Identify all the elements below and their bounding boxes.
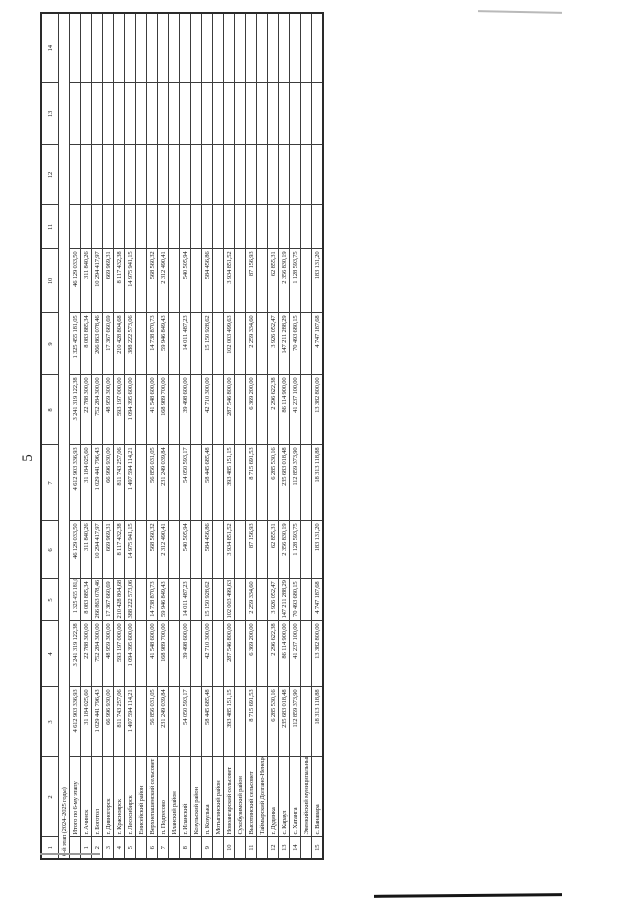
empty-cell-col14 [114,13,125,83]
value-cell-col6 [301,521,312,579]
value-cell-col7: 8 715 691,53 [246,445,257,521]
territory-name-cell: г. Лесосибирск [125,757,136,837]
empty-cell-col13 [202,83,213,145]
value-cell-col10: 183 131,20 [312,249,324,313]
value-cell-col6 [235,521,246,579]
page-number: 5 [14,448,42,468]
territory-name-cell: Иланский район [169,757,180,837]
empty-cell-col14 [158,13,169,83]
table-row-data: 1г. Ачинск31 184 025,6022 788 300,008 08… [81,13,92,859]
empty-cell-col12 [301,145,312,205]
table-row-data: 3г. Дивногорск66 996 930,0048 959 300,00… [103,13,114,859]
value-cell-col9: 4 747 187,68 [312,313,324,375]
value-cell-col7 [257,445,268,521]
value-cell-col9 [301,313,312,375]
value-cell-col7: 231 249 039,84 [158,445,169,521]
value-cell-col5: 17 367 660,69 [103,579,114,621]
value-cell-col7: 58 445 685,48 [202,445,213,521]
value-cell-col8 [191,375,202,445]
empty-cell-col13 [279,83,290,145]
empty-cell-col14 [246,13,257,83]
empty-cell-col11 [180,205,191,249]
value-cell-col3: 811 743 257,06 [114,687,125,757]
value-cell-col3: 66 996 930,00 [103,687,114,757]
row-number-cell [301,837,312,859]
value-cell-col3 [235,687,246,757]
value-cell-col8: 287 546 800,00 [224,375,235,445]
table-row-group: Эвенкийский муниципальный район [301,13,312,859]
empty-cell-col12 [114,145,125,205]
empty-cell-col11 [114,205,125,249]
row-number-cell: 11 [246,837,257,859]
table-row-data: 9п. Козулька58 445 685,4842 710 300,0015… [202,13,213,859]
scan-artifact-bottom-line [374,893,562,898]
value-cell-col4: 168 989 700,00 [158,621,169,687]
empty-cell-col13 [224,83,235,145]
empty-cell-col12 [235,145,246,205]
empty-cell-col14 [301,13,312,83]
value-cell-col5 [191,579,202,621]
value-cell-col7: 235 683 018,48 [279,445,290,521]
value-cell-col4 [191,621,202,687]
value-cell-col7 [213,445,224,521]
row-number-cell [235,837,246,859]
value-cell-col8: 752 284 300,00 [92,375,103,445]
scan-artifact-speck [40,853,100,855]
scanned-document-page: 5 12345678910111213146-й этап (2024–2025… [0,0,640,905]
value-cell-col7: 56 856 031,05 [147,445,158,521]
empty-cell-col14 [279,13,290,83]
table-row-group: Козульский район [191,13,202,859]
value-cell-col6: 46 129 033,50 [70,521,81,579]
value-cell-col7 [169,445,180,521]
value-cell-col3 [257,687,268,757]
value-cell-col9: 17 367 660,69 [103,313,114,375]
empty-cell-col11 [136,205,147,249]
empty-cell-col12 [92,145,103,205]
value-cell-col10: 8 117 432,38 [114,249,125,313]
value-cell-col8 [235,375,246,445]
stage-header-cell: 6-й этап (2024–2025 годы) [59,13,70,859]
empty-cell-col14 [312,13,324,83]
value-cell-col10: 2 356 830,19 [279,249,290,313]
empty-cell-col11 [235,205,246,249]
empty-cell-col14 [180,13,191,83]
value-cell-col6: 669 969,31 [103,521,114,579]
row-number-cell [257,837,268,859]
value-cell-col6 [213,521,224,579]
column-number-cell: 14 [41,13,59,83]
value-cell-col6 [191,521,202,579]
value-cell-col10 [301,249,312,313]
value-cell-col4: 13 382 800,00 [312,621,324,687]
value-cell-col9: 1 325 455 181,05 [70,313,81,375]
empty-cell-col14 [125,13,136,83]
value-cell-col9: 388 222 573,06 [125,313,136,375]
value-cell-col8: 39 498 600,00 [180,375,191,445]
value-cell-col9: 8 083 885,34 [81,313,92,375]
value-cell-col6: 2 356 830,19 [279,521,290,579]
value-cell-col5: 266 863 078,46 [92,579,103,621]
empty-cell-col13 [191,83,202,145]
empty-cell-col12 [136,145,147,205]
empty-cell-col12 [81,145,92,205]
value-cell-col5: 210 428 804,68 [114,579,125,621]
value-cell-col6: 568 560,32 [147,521,158,579]
value-cell-col4 [257,621,268,687]
empty-cell-col12 [279,145,290,205]
value-cell-col4: 752 284 300,00 [92,621,103,687]
value-cell-col5: 8 083 885,34 [81,579,92,621]
empty-cell-col14 [136,13,147,83]
column-number-cell: 7 [41,445,59,521]
value-cell-col10: 14 975 941,15 [125,249,136,313]
value-cell-col4 [235,621,246,687]
column-number-cell: 3 [41,687,59,757]
table-row-group: Енисейский район [136,13,147,859]
value-cell-col7 [191,445,202,521]
empty-cell-col12 [290,145,301,205]
empty-cell-col11 [279,205,290,249]
value-cell-col10: 568 560,32 [147,249,158,313]
value-cell-col8 [136,375,147,445]
value-cell-col4 [213,621,224,687]
value-cell-col5: 15 150 928,62 [202,579,213,621]
value-cell-col10: 62 855,31 [268,249,279,313]
empty-cell-col13 [92,83,103,145]
value-cell-col3 [213,687,224,757]
empty-cell-col13 [180,83,191,145]
territory-name-cell: с. Караул [279,757,290,837]
value-cell-col8: 3 241 319 122,38 [70,375,81,445]
territory-name-cell: Новоангарский сельсовет [224,757,235,837]
value-cell-col7: 811 743 257,06 [114,445,125,521]
empty-cell-col13 [301,83,312,145]
value-cell-col6: 2 312 490,41 [158,521,169,579]
table-row-data: 13с. Караул235 683 018,4886 114 900,0014… [279,13,290,859]
row-number-cell: 5 [125,837,136,859]
value-cell-col10: 311 840,26 [81,249,92,313]
territory-name-cell: Эвенкийский муниципальный район [301,757,312,837]
row-number-cell: 7 [158,837,169,859]
value-cell-col9: 266 863 078,46 [92,313,103,375]
value-cell-col10 [213,249,224,313]
value-cell-col10: 10 294 417,97 [92,249,103,313]
value-cell-col6: 584 456,86 [202,521,213,579]
value-cell-col7: 6 285 530,16 [268,445,279,521]
empty-cell-col11 [290,205,301,249]
value-cell-col5: 14 011 487,23 [180,579,191,621]
value-cell-col10: 2 312 490,41 [158,249,169,313]
column-number-cell: 9 [41,313,59,375]
row-number-cell: 10 [224,837,235,859]
table-row-data: 11Высотинский сельсовет8 715 691,536 369… [246,13,257,859]
value-cell-col8: 86 114 900,00 [279,375,290,445]
value-cell-col7 [235,445,246,521]
empty-cell-col13 [81,83,92,145]
value-cell-col8: 42 710 300,00 [202,375,213,445]
territory-name-cell: Итого по 6-му этапу [70,757,81,837]
empty-cell-col11 [70,205,81,249]
empty-cell-col12 [125,145,136,205]
value-cell-col6 [136,521,147,579]
value-cell-col3: 231 249 039,84 [158,687,169,757]
row-number-cell: 2 [92,837,103,859]
row-number-cell: 12 [268,837,279,859]
territory-name-cell: г. Дивногорск [103,757,114,837]
value-cell-col4: 6 369 200,00 [246,621,257,687]
value-cell-col9: 15 150 928,62 [202,313,213,375]
value-cell-col5: 1 325 455 181,05 [70,579,81,621]
empty-cell-col14 [290,13,301,83]
value-cell-col8: 13 382 800,00 [312,375,324,445]
empty-cell-col12 [312,145,324,205]
value-cell-col5: 2 259 334,60 [246,579,257,621]
row-number-cell: 9 [202,837,213,859]
empty-cell-col14 [147,13,158,83]
empty-cell-col12 [158,145,169,205]
value-cell-col6 [257,521,268,579]
value-cell-col3: 4 612 903 336,93 [70,687,81,757]
table-row-group: Таймырский Долгано-Ненецкий муниципальны… [257,13,268,859]
value-cell-col3: 54 050 593,17 [180,687,191,757]
row-number-cell [213,837,224,859]
column-number-cell: 1 [41,837,59,859]
empty-cell-col14 [235,13,246,83]
value-cell-col4: 22 788 300,00 [81,621,92,687]
table-row-data: 14с. Хатанга112 859 373,9041 237 100,007… [290,13,301,859]
territory-name-cell: Таймырский Долгано-Ненецкий муниципальны… [257,757,268,837]
territory-name-cell: Козульский район [191,757,202,837]
value-cell-col10: 1 128 593,75 [290,249,301,313]
value-cell-col9 [191,313,202,375]
value-cell-col9: 14 011 487,23 [180,313,191,375]
value-cell-col7: 54 050 593,17 [180,445,191,521]
row-number-cell: 4 [114,837,125,859]
table-row-total: Итого по 6-му этапу4 612 903 336,933 241… [70,13,81,859]
value-cell-col10: 669 969,31 [103,249,114,313]
row-number-cell: 15 [312,837,324,859]
value-cell-col8: 6 369 200,00 [246,375,257,445]
empty-cell-col12 [147,145,158,205]
table-row-group: Иланский район [169,13,180,859]
value-cell-col4 [301,621,312,687]
value-cell-col3 [301,687,312,757]
value-cell-col9: 3 926 052,47 [268,313,279,375]
value-cell-col5: 70 493 680,15 [290,579,301,621]
territory-name-cell: Верхнепашенский сельсовет [147,757,158,837]
value-cell-col7: 66 996 930,00 [103,445,114,521]
value-cell-col5 [169,579,180,621]
value-cell-col7: 4 612 903 336,93 [70,445,81,521]
value-cell-col9: 2 259 334,60 [246,313,257,375]
value-cell-col8: 593 197 000,00 [114,375,125,445]
value-cell-col6: 62 855,31 [268,521,279,579]
value-cell-col8: 41 237 100,00 [290,375,301,445]
empty-cell-col12 [70,145,81,205]
value-cell-col4: 3 241 319 122,38 [70,621,81,687]
column-number-cell: 10 [41,249,59,313]
empty-cell-col13 [158,83,169,145]
value-cell-col10: 584 456,86 [202,249,213,313]
value-cell-col5 [235,579,246,621]
table-row-data: 4г. Красноярск811 743 257,06593 197 000,… [114,13,125,859]
value-cell-col9 [169,313,180,375]
value-cell-col8: 41 548 600,00 [147,375,158,445]
value-cell-col10: 3 934 851,52 [224,249,235,313]
page-number-container: 5 [18,444,38,472]
empty-cell-col11 [169,205,180,249]
value-cell-col5: 147 211 288,29 [279,579,290,621]
table-row-group: Сухобузимский район [235,13,246,859]
table-row-data: 2г. Боготол1 029 441 796,43752 284 300,0… [92,13,103,859]
column-number-cell: 5 [41,579,59,621]
value-cell-col8: 2 296 622,38 [268,375,279,445]
territory-name-cell: Высотинский сельсовет [246,757,257,837]
value-cell-col9: 59 946 849,43 [158,313,169,375]
territory-name-cell: г. Иланский [180,757,191,837]
column-number-cell: 4 [41,621,59,687]
value-cell-col5 [257,579,268,621]
value-cell-col7: 18 313 118,88 [312,445,324,521]
value-cell-col7: 393 485 151,15 [224,445,235,521]
table-row-data: 6Верхнепашенский сельсовет56 856 031,054… [147,13,158,859]
value-cell-col4: 86 114 900,00 [279,621,290,687]
territory-name-cell: г. Ачинск [81,757,92,837]
rotated-table-container: 12345678910111213146-й этап (2024–2025 г… [40,14,392,860]
value-cell-col5 [136,579,147,621]
value-cell-col5 [301,579,312,621]
empty-cell-col11 [268,205,279,249]
column-number-cell: 6 [41,521,59,579]
value-cell-col6: 3 934 851,52 [224,521,235,579]
row-number-cell: 3 [103,837,114,859]
value-cell-col6: 1 128 593,75 [290,521,301,579]
table-row-data: 7п. Подтесово231 249 039,84168 989 700,0… [158,13,169,859]
value-cell-col8: 48 959 300,00 [103,375,114,445]
empty-cell-col14 [268,13,279,83]
row-number-cell [191,837,202,859]
value-cell-col10: 540 505,94 [180,249,191,313]
value-cell-col8 [169,375,180,445]
value-cell-col3: 1 497 594 114,21 [125,687,136,757]
value-cell-col5: 102 003 499,63 [224,579,235,621]
value-cell-col9 [213,313,224,375]
value-cell-col9: 14 738 870,73 [147,313,158,375]
value-cell-col5: 59 946 849,43 [158,579,169,621]
empty-cell-col14 [191,13,202,83]
empty-cell-col11 [301,205,312,249]
value-cell-col4: 42 710 300,00 [202,621,213,687]
empty-cell-col13 [312,83,324,145]
value-cell-col7: 31 184 025,60 [81,445,92,521]
value-cell-col3 [136,687,147,757]
table-row-data: 10Новоангарский сельсовет393 485 151,152… [224,13,235,859]
value-cell-col3 [191,687,202,757]
column-number-cell: 12 [41,145,59,205]
empty-cell-col11 [202,205,213,249]
value-cell-col5: 14 738 870,73 [147,579,158,621]
value-cell-col8 [257,375,268,445]
empty-cell-col11 [191,205,202,249]
empty-cell-col13 [235,83,246,145]
table-row-data: 8г. Иланский54 050 593,1739 498 600,0014… [180,13,191,859]
value-cell-col4: 48 959 300,00 [103,621,114,687]
value-cell-col8: 1 094 395 600,00 [125,375,136,445]
value-cell-col10 [191,249,202,313]
value-cell-col9: 147 211 288,29 [279,313,290,375]
value-cell-col10 [136,249,147,313]
empty-cell-col12 [191,145,202,205]
column-number-cell: 2 [41,757,59,837]
value-cell-col5: 388 222 573,06 [125,579,136,621]
empty-cell-col14 [213,13,224,83]
row-number-cell: 6 [147,837,158,859]
value-cell-col7: 1 497 594 114,21 [125,445,136,521]
table-row-stage: 6-й этап (2024–2025 годы) [59,13,70,859]
budget-table: 12345678910111213146-й этап (2024–2025 г… [40,12,324,860]
value-cell-col3: 6 285 530,16 [268,687,279,757]
empty-cell-col13 [213,83,224,145]
value-cell-col4: 1 094 395 600,00 [125,621,136,687]
empty-cell-col11 [224,205,235,249]
empty-cell-col12 [103,145,114,205]
territory-name-cell: г. Дудинка [268,757,279,837]
value-cell-col3: 31 184 025,60 [81,687,92,757]
value-cell-col4: 41 548 600,00 [147,621,158,687]
empty-cell-col12 [224,145,235,205]
empty-cell-col14 [224,13,235,83]
empty-cell-col13 [257,83,268,145]
value-cell-col9: 210 428 804,68 [114,313,125,375]
table-row-data: 12г. Дудинка6 285 530,162 296 622,383 92… [268,13,279,859]
empty-cell-col13 [290,83,301,145]
value-cell-col9: 70 493 680,15 [290,313,301,375]
territory-name-cell: г. Боготол [92,757,103,837]
value-cell-col6: 183 131,20 [312,521,324,579]
column-number-cell: 11 [41,205,59,249]
table-row-data: 15с. Ванавара18 313 118,8813 382 800,004… [312,13,324,859]
row-number-cell [136,837,147,859]
territory-name-cell: Сухобузимский район [235,757,246,837]
value-cell-col4: 2 296 622,38 [268,621,279,687]
value-cell-col5 [213,579,224,621]
value-cell-col3: 1 029 441 796,43 [92,687,103,757]
value-cell-col7 [301,445,312,521]
scan-artifact-top-smudge [478,10,562,14]
value-cell-col6 [169,521,180,579]
empty-cell-col11 [312,205,324,249]
value-cell-col4: 39 498 600,00 [180,621,191,687]
empty-cell-col13 [147,83,158,145]
empty-cell-col12 [246,145,257,205]
value-cell-col6: 311 840,26 [81,521,92,579]
empty-cell-col11 [213,205,224,249]
value-cell-col8 [301,375,312,445]
empty-cell-col13 [70,83,81,145]
empty-cell-col13 [125,83,136,145]
territory-name-cell: п. Козулька [202,757,213,837]
empty-cell-col11 [125,205,136,249]
value-cell-col7 [136,445,147,521]
value-cell-col9 [235,313,246,375]
territory-name-cell: Мотыгинский район [213,757,224,837]
empty-cell-col12 [180,145,191,205]
empty-cell-col14 [202,13,213,83]
empty-cell-col11 [147,205,158,249]
empty-cell-col11 [257,205,268,249]
empty-cell-col13 [246,83,257,145]
